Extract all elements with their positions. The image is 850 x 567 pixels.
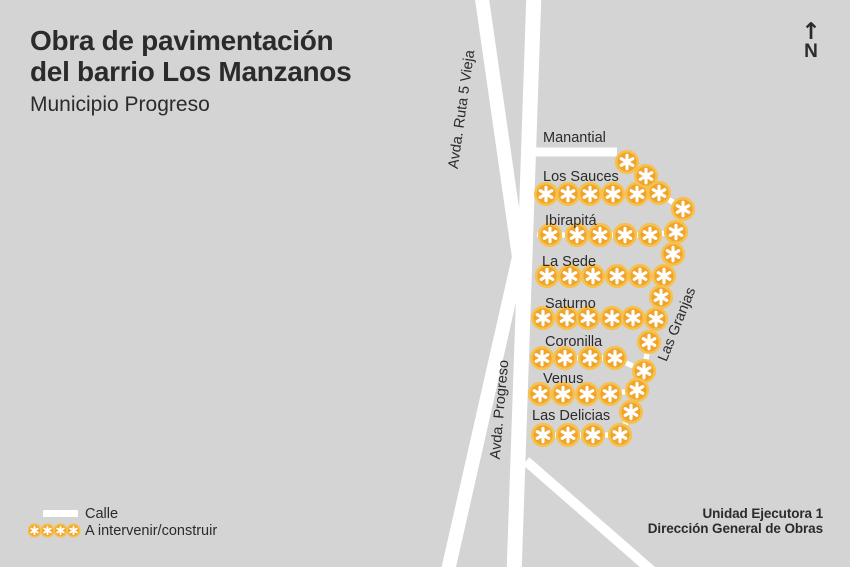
intervention-marker [629, 265, 651, 287]
intervention-marker [614, 224, 636, 246]
intervention-marker-small [28, 524, 41, 537]
intervention-marker [635, 165, 657, 187]
intervention-marker [665, 221, 687, 243]
compass: ↑ N [797, 21, 825, 61]
page-subtitle: Municipio Progreso [30, 93, 351, 117]
credits-line-1: Unidad Ejecutora 1 [648, 507, 823, 522]
north-label: N [797, 43, 825, 61]
page-title: Obra de pavimentación del barrio Los Man… [30, 25, 351, 87]
street-label-coronilla: Coronilla [545, 334, 603, 350]
intervention-marker [650, 286, 672, 308]
street-label-las-delicias: Las Delicias [532, 408, 610, 424]
intervention-marker [662, 243, 684, 265]
intervention-marker-small [67, 524, 80, 537]
intervention-marker [638, 331, 660, 353]
intervention-marker [622, 307, 644, 329]
legend-row-intervention: A intervenir/construir [28, 522, 217, 539]
legend-label-calle: Calle [85, 506, 118, 522]
intervention-marker [645, 308, 667, 330]
intervention-marker [599, 383, 621, 405]
intervention-marker [606, 265, 628, 287]
credits-line-2: Dirección General de Obras [648, 522, 823, 537]
street-label-ibirapita: Ibirapitá [545, 213, 598, 229]
legend-street-swatch-col [28, 510, 85, 517]
intervention-marker [582, 424, 604, 446]
intervention-marker [557, 183, 579, 205]
intervention-marker [653, 265, 675, 287]
title-line-1: Obra de pavimentación [30, 25, 351, 56]
legend-intervention-swatch-col [28, 522, 85, 539]
intervention-marker [557, 424, 579, 446]
street-label-avda-ruta-5-vieja: Avda. Ruta 5 Vieja [446, 48, 479, 170]
intervention-marker [672, 198, 694, 220]
intervention-marker [602, 183, 624, 205]
street-swatch [43, 510, 78, 517]
intervention-markers-swatch [28, 522, 85, 539]
intervention-marker-small [41, 524, 54, 537]
street-label-manantial: Manantial [543, 130, 606, 146]
intervention-marker-small [54, 524, 67, 537]
intervention-marker [604, 347, 626, 369]
map-canvas: ManantialLos SaucesIbirapitáLa SedeSatur… [0, 0, 850, 567]
intervention-marker [616, 151, 638, 173]
street-label-saturno: Saturno [545, 296, 596, 312]
intervention-marker [620, 401, 642, 423]
street-avda-progreso [514, 0, 534, 567]
legend-row-street: Calle [28, 505, 217, 522]
intervention-marker [626, 379, 648, 401]
north-arrow-icon: ↑ [797, 21, 825, 43]
intervention-marker [535, 183, 557, 205]
intervention-marker [579, 347, 601, 369]
intervention-marker [609, 424, 631, 446]
header: Obra de pavimentación del barrio Los Man… [30, 25, 351, 117]
intervention-marker [531, 347, 553, 369]
intervention-marker [554, 347, 576, 369]
street-diagonal-0 [526, 461, 660, 567]
street-label-la-sede: La Sede [542, 254, 596, 270]
credits: Unidad Ejecutora 1 Dirección General de … [648, 507, 823, 536]
intervention-marker [601, 307, 623, 329]
title-line-2: del barrio Los Manzanos [30, 56, 351, 87]
legend: Calle A intervenir/construir [28, 505, 217, 539]
intervention-marker [579, 183, 601, 205]
intervention-marker [639, 224, 661, 246]
intervention-marker [532, 424, 554, 446]
legend-label-intervenir: A intervenir/construir [85, 523, 217, 539]
street-label-venus: Venus [543, 371, 583, 387]
street-label-los-sauces: Los Sauces [543, 169, 619, 185]
